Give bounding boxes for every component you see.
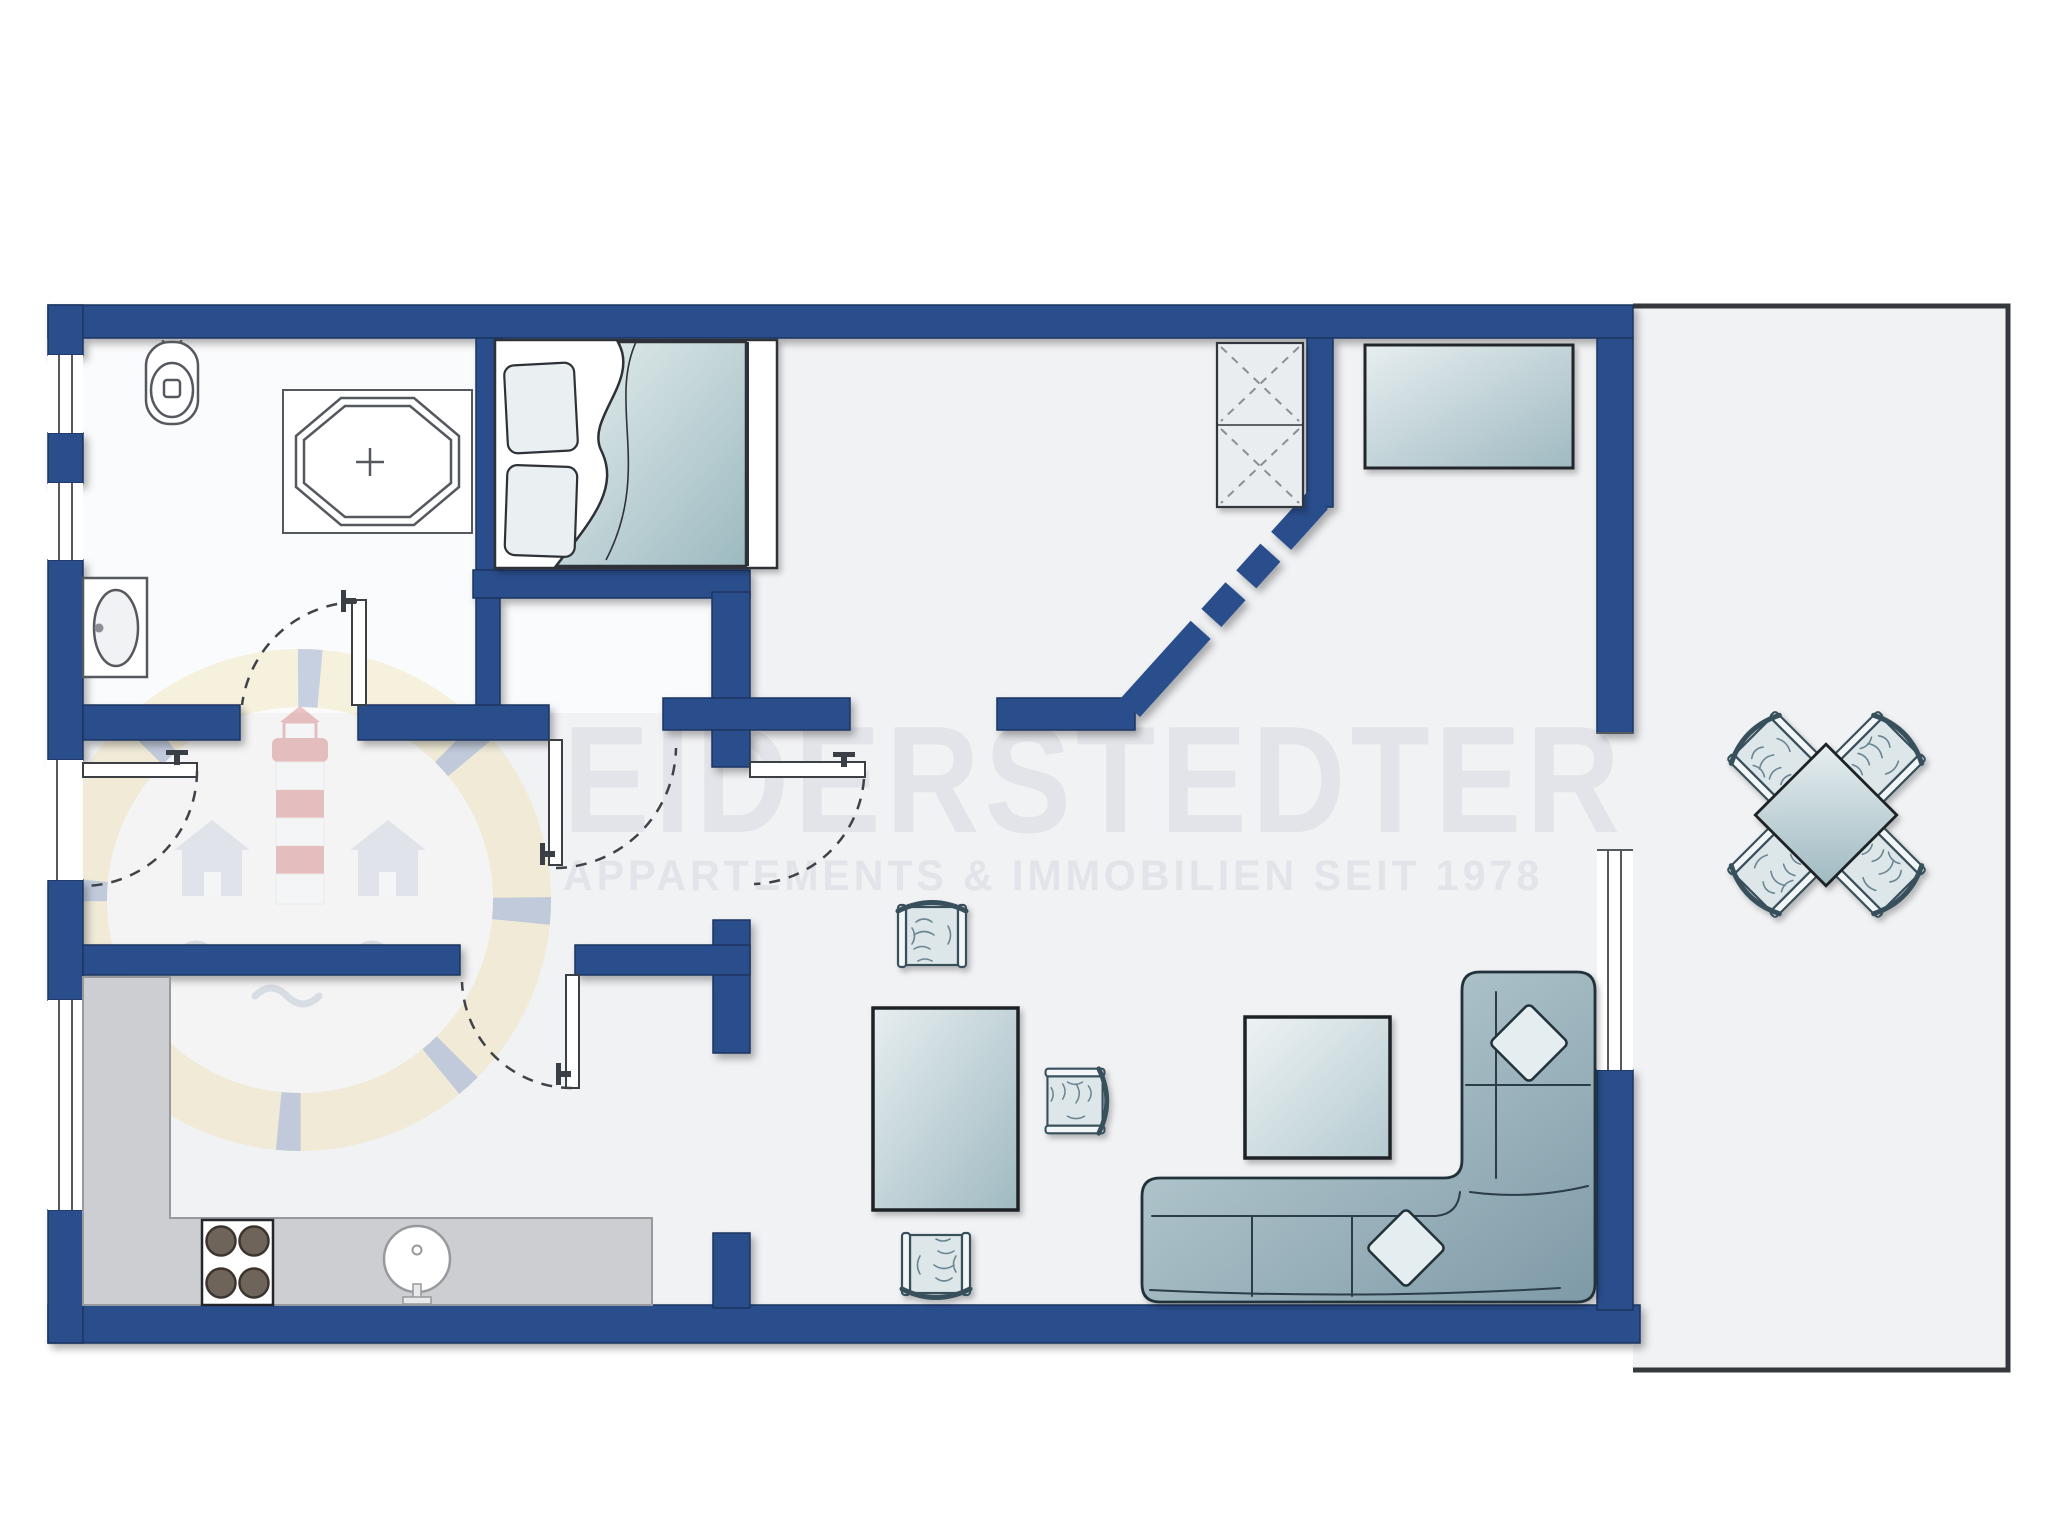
wall-segment-right bbox=[1597, 338, 1633, 733]
floor-plan-page: EIDERSTEDTER APPARTEMENTS & IMMOBILIEN S… bbox=[0, 0, 2048, 1538]
entrance-door-leaf bbox=[83, 763, 197, 777]
washbasin bbox=[83, 578, 147, 677]
toilet bbox=[146, 340, 198, 424]
window-living-right bbox=[1597, 850, 1633, 1070]
wall-segment-storageroom bbox=[1307, 338, 1333, 507]
wall-segment-left bbox=[48, 433, 83, 483]
wall-segment-hall-living bbox=[713, 1233, 750, 1308]
window-bathroom-1 bbox=[48, 355, 83, 433]
wall-segment-top bbox=[48, 305, 1633, 338]
stove-burner bbox=[207, 1269, 236, 1298]
wall-segment-bedroom-south bbox=[663, 698, 850, 730]
basin-faucet bbox=[95, 624, 104, 633]
stove-burner bbox=[207, 1227, 236, 1256]
wall-segment-kitchen bbox=[575, 945, 750, 975]
wall-segment-hall-living bbox=[713, 920, 750, 1053]
corner-shower bbox=[283, 390, 472, 533]
wall-segment-bedroom-bottom bbox=[473, 570, 750, 598]
wall-segment-hall bbox=[83, 705, 240, 740]
storage-cabinet bbox=[1365, 345, 1573, 468]
dining-chair-top bbox=[898, 903, 966, 968]
stove-burner bbox=[240, 1227, 269, 1256]
wall-segment-closet-right bbox=[712, 592, 750, 767]
wall-segment-closet-left bbox=[476, 598, 500, 712]
wall-segment-bottom bbox=[48, 1305, 1640, 1343]
wardrobe-closet bbox=[1217, 343, 1303, 507]
wall-segment-bedroom-south bbox=[997, 698, 1135, 730]
wall-segment-kitchen bbox=[83, 945, 460, 975]
floor-plan-drawing: EIDERSTEDTER APPARTEMENTS & IMMOBILIEN S… bbox=[0, 0, 2048, 1538]
wall-segment-left bbox=[48, 305, 83, 355]
bed-pillow bbox=[504, 362, 579, 454]
side-table bbox=[1245, 1017, 1390, 1158]
wall-segment-left bbox=[48, 1210, 83, 1343]
wall-segment-right bbox=[1597, 1070, 1633, 1310]
double-bed bbox=[495, 340, 777, 568]
wall-segment-hall bbox=[358, 705, 549, 740]
dining-chair-bottom bbox=[902, 1233, 970, 1298]
wall-segment-left bbox=[48, 880, 83, 1000]
stove bbox=[202, 1220, 273, 1305]
bathroom-door-leaf bbox=[352, 600, 366, 705]
entrance-opening bbox=[46, 760, 83, 880]
wall-segment-left bbox=[48, 560, 83, 760]
bed-pillow bbox=[504, 465, 577, 557]
window-bathroom-2 bbox=[48, 483, 83, 560]
watermark-subtitle: APPARTEMENTS & IMMOBILIEN SEIT 1978 bbox=[563, 852, 1543, 900]
dining-chair-right bbox=[1046, 1069, 1107, 1134]
living-room-door-leaf bbox=[750, 762, 865, 777]
window-kitchen bbox=[48, 1000, 83, 1210]
storage-closet-door-leaf bbox=[549, 740, 562, 865]
stove-burner bbox=[240, 1269, 269, 1298]
dining-table bbox=[873, 1008, 1018, 1210]
